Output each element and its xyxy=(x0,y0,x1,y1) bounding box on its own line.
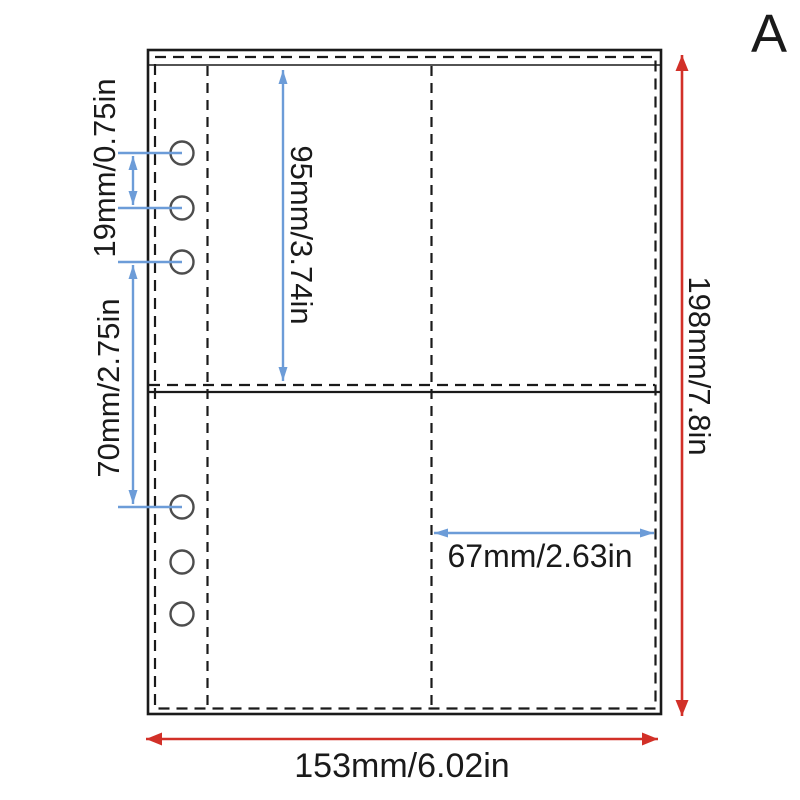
page-outline-group xyxy=(148,50,661,714)
product-dimension-diagram: A 19mm/0.75in 70mm/2.75in 95mm/3.74in 19… xyxy=(0,0,800,800)
binder-hole xyxy=(171,603,194,626)
hole-group-height-label: 70mm/2.75in xyxy=(91,298,126,477)
hole-pitch-label: 19mm/0.75in xyxy=(87,78,122,257)
binder-hole xyxy=(171,551,194,574)
page-height-label: 198mm/7.8in xyxy=(682,276,717,455)
binder-pocket-page-diagram: A 19mm/0.75in 70mm/2.75in 95mm/3.74in 19… xyxy=(0,0,800,800)
pocket-width-label: 67mm/2.63in xyxy=(448,538,633,574)
page-outer-border xyxy=(148,50,661,714)
page-width-label: 153mm/6.02in xyxy=(294,747,509,785)
variant-letter: A xyxy=(751,4,787,64)
pocket-height-label: 95mm/3.74in xyxy=(284,145,319,324)
